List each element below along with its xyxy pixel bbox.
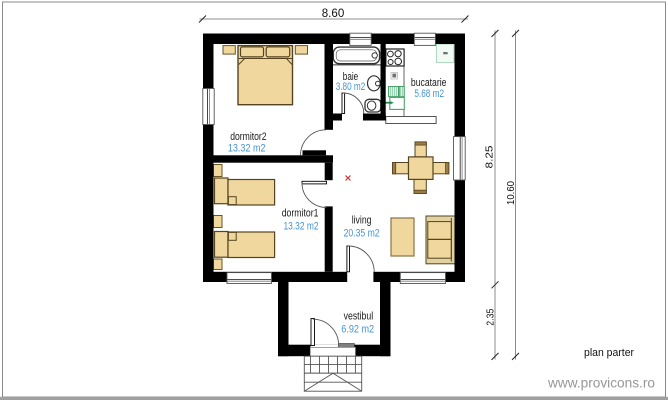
- svg-text:8.60: 8.60: [322, 8, 345, 20]
- svg-text:5.68 m2: 5.68 m2: [414, 88, 444, 100]
- svg-text:2.35: 2.35: [484, 309, 496, 326]
- svg-text:13.32 m2: 13.32 m2: [284, 220, 319, 232]
- svg-text:6.92 m2: 6.92 m2: [341, 324, 374, 336]
- svg-text:13.32 m2: 13.32 m2: [228, 142, 266, 154]
- svg-text:10.60: 10.60: [505, 181, 517, 205]
- svg-text:20.35 m2: 20.35 m2: [344, 227, 380, 239]
- svg-text:8.25: 8.25: [484, 145, 496, 168]
- svg-text:plan parter: plan parter: [584, 347, 634, 359]
- svg-text:www.provicons.ro: www.provicons.ro: [547, 376, 655, 391]
- svg-text:bucatarie: bucatarie: [411, 77, 447, 89]
- svg-text:dormitor2: dormitor2: [230, 131, 266, 143]
- svg-text:living: living: [352, 215, 372, 227]
- svg-text:3.80 m2: 3.80 m2: [336, 81, 366, 93]
- svg-text:vestibul: vestibul: [344, 311, 374, 323]
- svg-text:dormitor1: dormitor1: [282, 208, 319, 220]
